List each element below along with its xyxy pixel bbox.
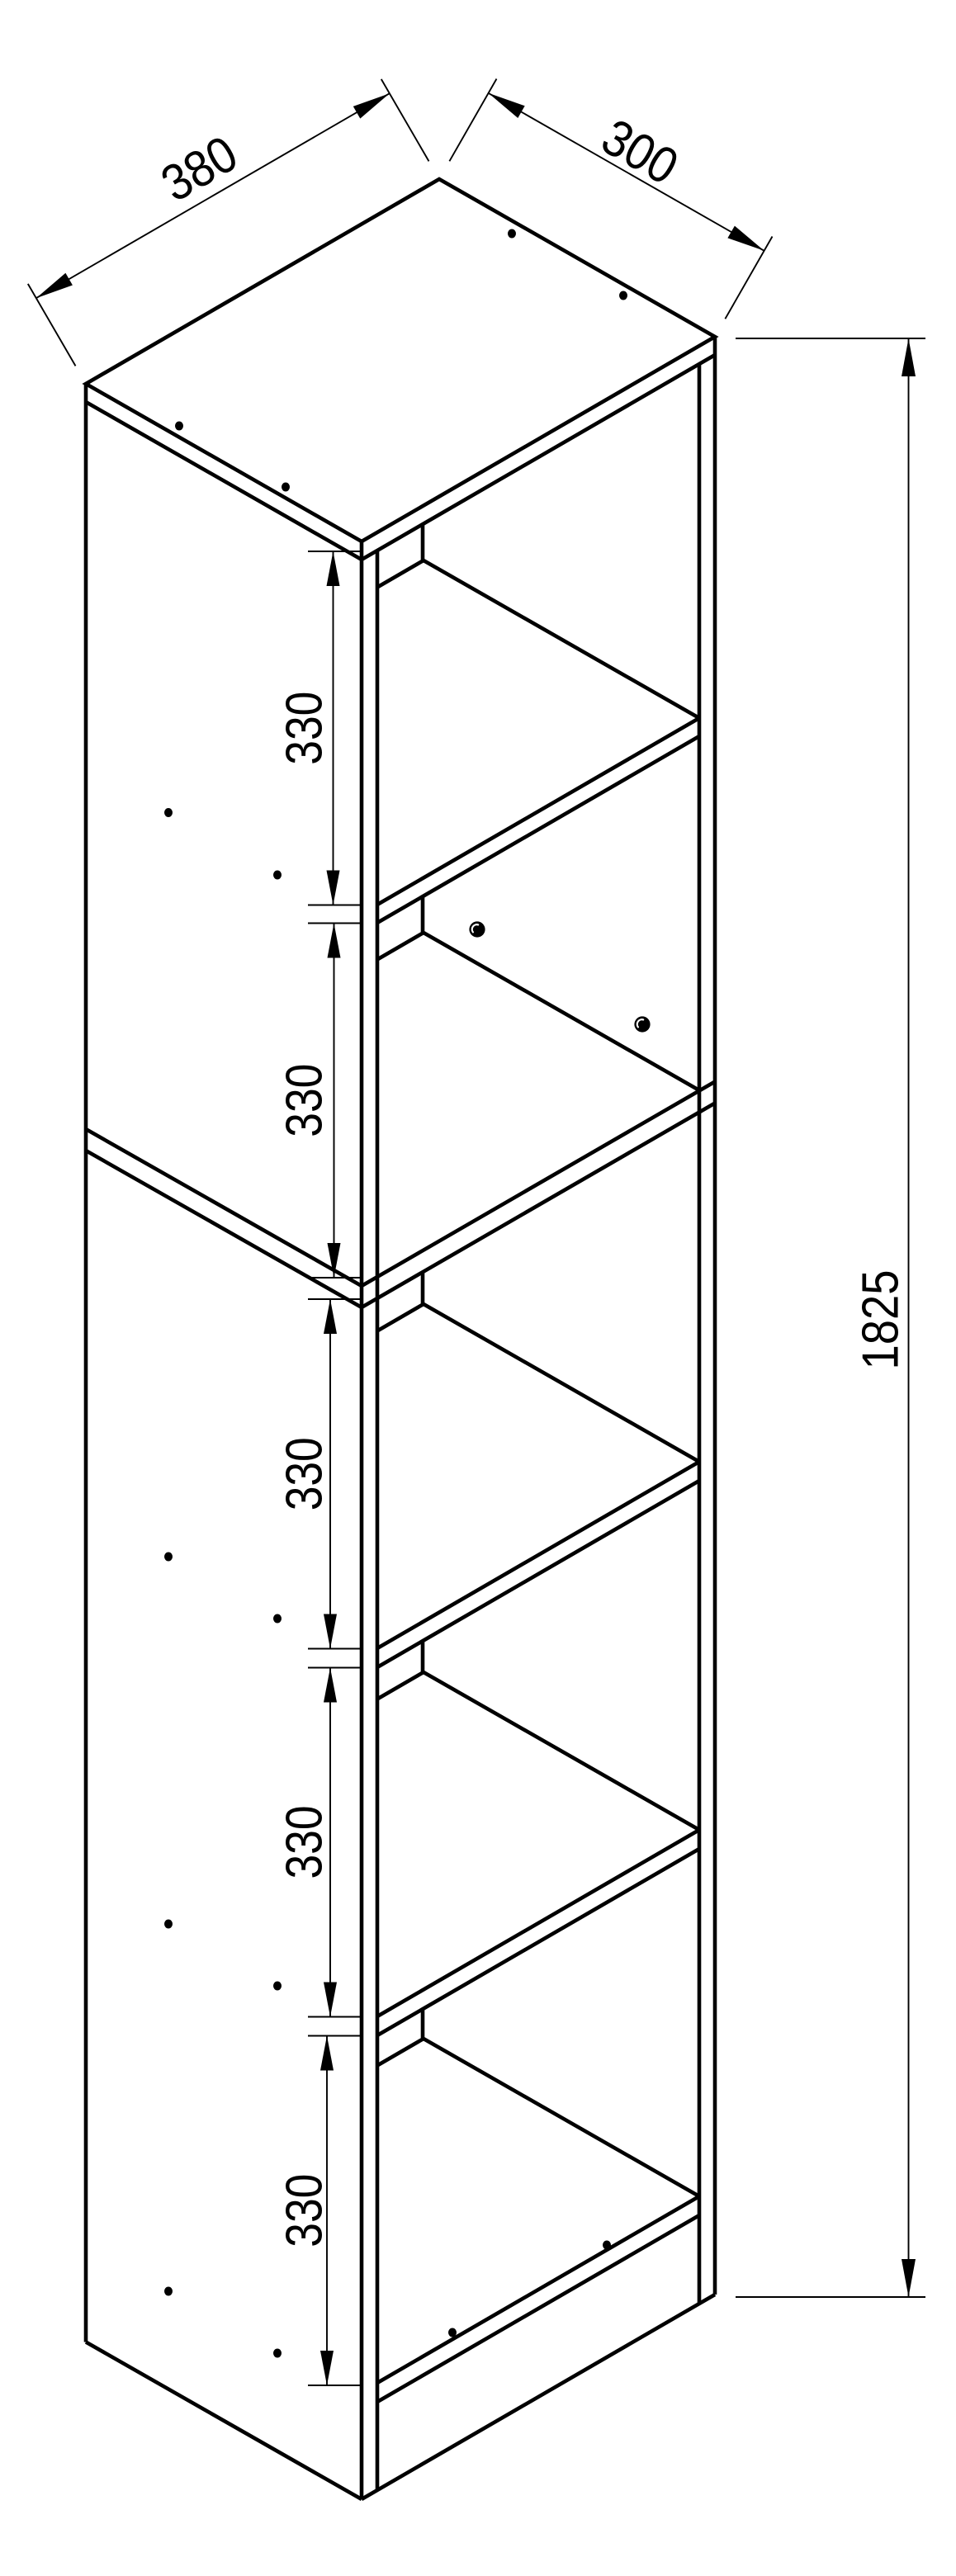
svg-text:330: 330 <box>276 2174 333 2248</box>
svg-text:330: 330 <box>276 1806 333 1879</box>
svg-text:330: 330 <box>276 1064 333 1137</box>
svg-text:1825: 1825 <box>852 1270 909 1370</box>
svg-text:330: 330 <box>276 1437 333 1510</box>
svg-text:330: 330 <box>276 692 333 765</box>
